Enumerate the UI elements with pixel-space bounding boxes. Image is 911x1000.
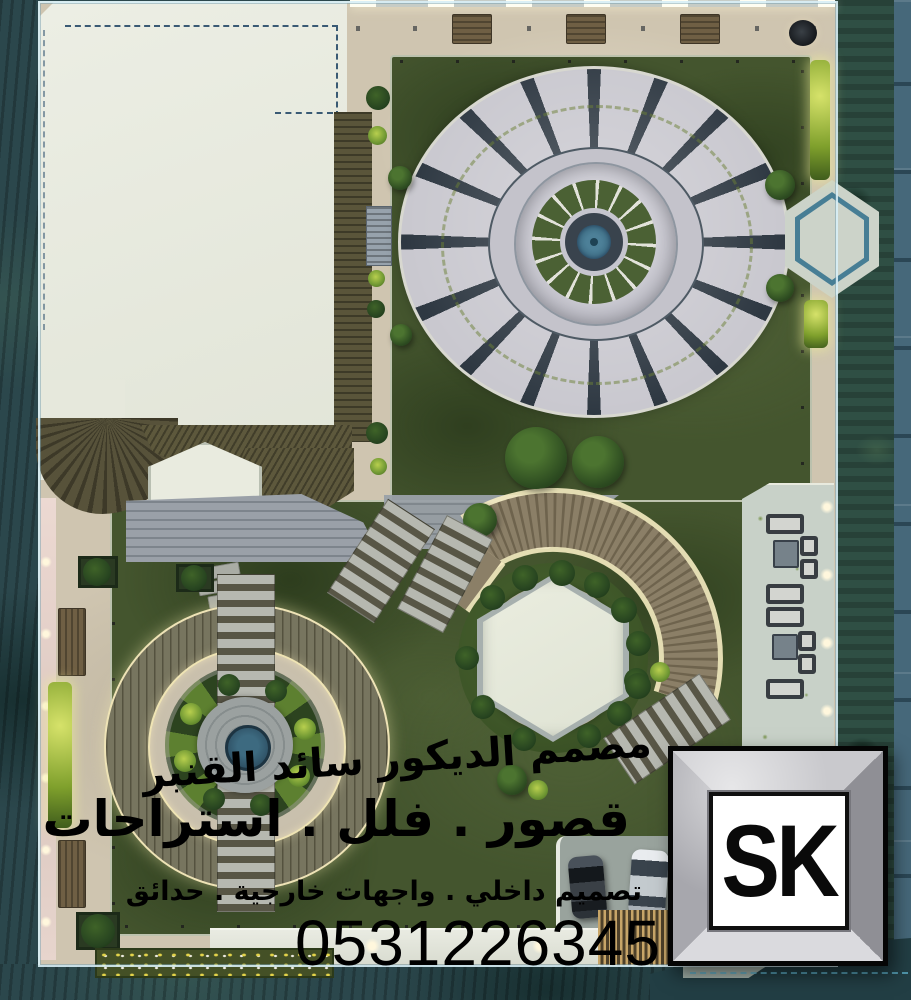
tree-large	[505, 427, 567, 489]
shrub	[218, 674, 240, 696]
outdoor-table	[773, 540, 799, 568]
shrub	[366, 86, 390, 110]
shrub	[294, 718, 316, 740]
tree	[766, 274, 794, 302]
shrub	[625, 673, 651, 699]
outdoor-sofa	[766, 607, 804, 627]
fountain-jet	[590, 238, 598, 246]
shrub	[480, 585, 505, 610]
outdoor-chair	[800, 536, 818, 556]
garden-bench	[452, 14, 492, 44]
left-boundary-wall	[0, 0, 38, 1000]
shrub	[549, 560, 575, 586]
shrub	[368, 126, 387, 145]
outdoor-sofa	[766, 584, 804, 604]
outdoor-table	[772, 634, 798, 660]
illuminated-planter	[804, 300, 828, 348]
shrub	[265, 680, 287, 702]
wall-light	[40, 556, 52, 568]
watermark-phone-number: 0531226345	[295, 906, 661, 980]
garden-bench	[680, 14, 720, 44]
outdoor-sofa	[766, 514, 804, 534]
sk-logo: SK	[668, 746, 888, 966]
tree-large	[572, 436, 624, 488]
outdoor-chair	[798, 631, 816, 651]
wall-light	[40, 628, 52, 640]
garden-bench	[58, 840, 86, 908]
shrub	[370, 458, 387, 475]
watermark-line-3: تصميم داخلي . واجهات خارجية . حدائق	[126, 876, 642, 907]
wall-light	[820, 636, 834, 650]
tree	[765, 170, 795, 200]
wall-light	[820, 500, 834, 514]
illuminated-planter	[810, 60, 830, 180]
shrub	[368, 270, 385, 287]
right-wall-panel	[894, 0, 911, 1000]
shrub	[83, 558, 111, 586]
garden-bench	[566, 14, 606, 44]
tree	[390, 324, 412, 346]
shrub	[650, 662, 670, 682]
landscape-plan-render: مصمم الديكور سائد القنبر قصور . فلل . اس…	[0, 0, 911, 1000]
tree	[388, 166, 412, 190]
watermark-line-2: قصور . فلل . استراحات	[42, 790, 630, 848]
shrub	[584, 572, 610, 598]
wall-light	[820, 568, 834, 582]
wall-light	[40, 916, 52, 928]
round-table-set	[789, 20, 817, 46]
roof-setback-line	[43, 30, 45, 330]
pool-edge-dashed-line	[690, 972, 908, 974]
shrub	[81, 914, 115, 948]
shrub	[626, 631, 651, 656]
roof-setback-line	[275, 112, 333, 114]
garden-bench	[58, 608, 86, 676]
shrub	[180, 703, 202, 725]
shrub	[611, 597, 637, 623]
outdoor-chair	[800, 559, 818, 579]
shrub	[512, 565, 538, 591]
outdoor-sofa	[766, 679, 804, 699]
shrub	[181, 565, 207, 591]
roof-setback-line	[65, 25, 338, 117]
shrub	[366, 422, 388, 444]
path-lights-top	[400, 60, 800, 63]
shrub	[455, 646, 479, 670]
outdoor-chair	[798, 654, 816, 674]
top-wall-lights-row	[350, 0, 835, 7]
logo-text: SK	[722, 810, 837, 912]
wall-light	[820, 704, 834, 718]
ac-grille	[366, 206, 392, 266]
pergola-side-strip	[334, 112, 372, 442]
path-lights-right	[801, 70, 804, 490]
logo-inner-plate: SK	[709, 792, 849, 930]
shrub	[471, 695, 495, 719]
shrub	[367, 300, 385, 318]
